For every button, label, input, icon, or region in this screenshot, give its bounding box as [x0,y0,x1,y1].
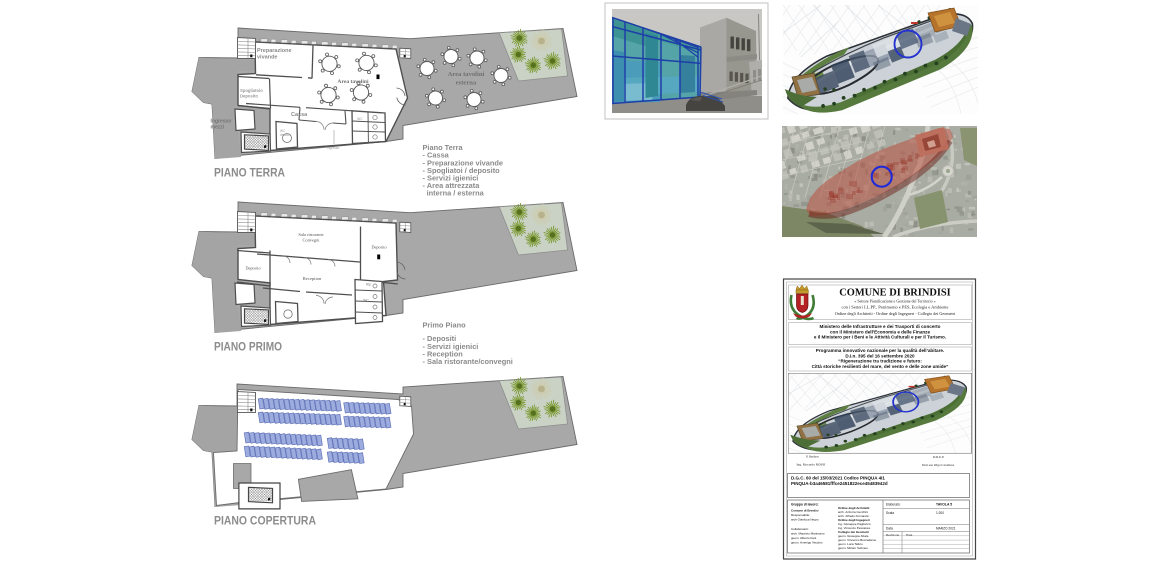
svg-text:Ordine degli Architetti - Ordi: Ordine degli Architetti - Ordine degli I… [835,311,956,316]
svg-text:Gruppo di lavoro:: Gruppo di lavoro: [791,503,819,507]
svg-text:Ingresso: Ingresso [327,146,339,150]
svg-text:WC: WC [357,117,363,121]
svg-text:MARZO 2021: MARZO 2021 [936,527,956,531]
svg-text:arch. Maurizio Marinazzo: arch. Maurizio Marinazzo [791,532,825,536]
svg-text:PIANO COPERTURA: PIANO COPERTURA [214,513,316,527]
svg-text:Reception: Reception [303,276,322,281]
svg-text:Deposito: Deposito [240,94,258,99]
svg-text:« Settore Pianificazione e Ges: « Settore Pianificazione e Gestione del … [854,299,935,304]
svg-text:PINQUA-b3a46581fffce2451822ece: PINQUA-b3a46581fffce2451822ece45483942d [791,481,888,486]
svg-text:Convegni: Convegni [302,238,320,243]
svg-text:Spogliatoio: Spogliatoio [240,88,263,93]
svg-text:PIANO PRIMO: PIANO PRIMO [214,339,282,353]
svg-text:Data: Data [886,527,893,531]
svg-text:arch Gianluca Negro: arch Gianluca Negro [791,518,819,522]
svg-text:Primo Piano: Primo Piano [423,321,467,330]
svg-text:1:200: 1:200 [936,511,944,515]
svg-text:- Sala ristorante/convegni: - Sala ristorante/convegni [423,357,513,366]
svg-text:geom. Alberto Fanì: geom. Alberto Fanì [791,536,817,540]
svg-text:Deposito: Deposito [245,266,260,271]
svg-text:COMUNE DI BRINDISI: COMUNE DI BRINDISI [839,288,950,299]
svg-text:Comune di Brindisi: Comune di Brindisi [791,509,819,513]
svg-text:Revisione: Revisione [886,533,900,537]
svg-text:Data: Data [906,533,913,537]
svg-text:WC: WC [363,299,369,303]
svg-text:Dott.ssa Olga Cavaliere: Dott.ssa Olga Cavaliere [922,463,955,467]
svg-text:Il Sindaco: Il Sindaco [806,455,819,459]
svg-text:Responsabile:: Responsabile: [791,513,810,517]
svg-text:vivande: vivande [257,55,277,61]
svg-text:interna / esterna: interna / esterna [423,189,485,198]
svg-text:disabili: disabili [280,133,290,137]
svg-text:Scala: Scala [886,511,894,515]
svg-text:Ing. Riccardo ROSSI: Ing. Riccardo ROSSI [797,463,827,467]
svg-text:PIANO TERRA: PIANO TERRA [214,165,285,179]
svg-text:Area tavolini: Area tavolini [448,71,485,78]
svg-text:Rip.: Rip. [366,283,372,287]
svg-text:e il Ministero per i Beni e le: e il Ministero per i Beni e le Attività … [814,335,946,340]
svg-text:mezzi: mezzi [211,125,225,131]
svg-text:Collaboratori:: Collaboratori: [791,527,809,531]
svg-text:Sala ristorante: Sala ristorante [298,232,323,237]
svg-text:Deposito: Deposito [371,245,386,250]
svg-text:D.G.C. 60 del 15/03/2021 Codic: D.G.C. 60 del 15/03/2021 Codice PINQUA 4… [791,476,885,481]
svg-text:Area tavolini: Area tavolini [337,79,369,85]
svg-text:Preparazione: Preparazione [257,48,292,54]
svg-text:Cassa: Cassa [291,112,308,118]
svg-text:esterna: esterna [456,80,477,87]
svg-text:D.R.U.P.: D.R.U.P. [933,455,945,459]
svg-text:geom. Amerigo Vecchio: geom. Amerigo Vecchio [791,541,823,545]
svg-text:Elaborato:: Elaborato: [886,503,901,507]
svg-text:geom. Miriam Solimeo: geom. Miriam Solimeo [838,546,868,550]
svg-text:TAVOLA 5: TAVOLA 5 [936,503,952,507]
svg-text:Città storiche resilienti del: Città storiche resilienti del mare, del … [812,364,949,369]
